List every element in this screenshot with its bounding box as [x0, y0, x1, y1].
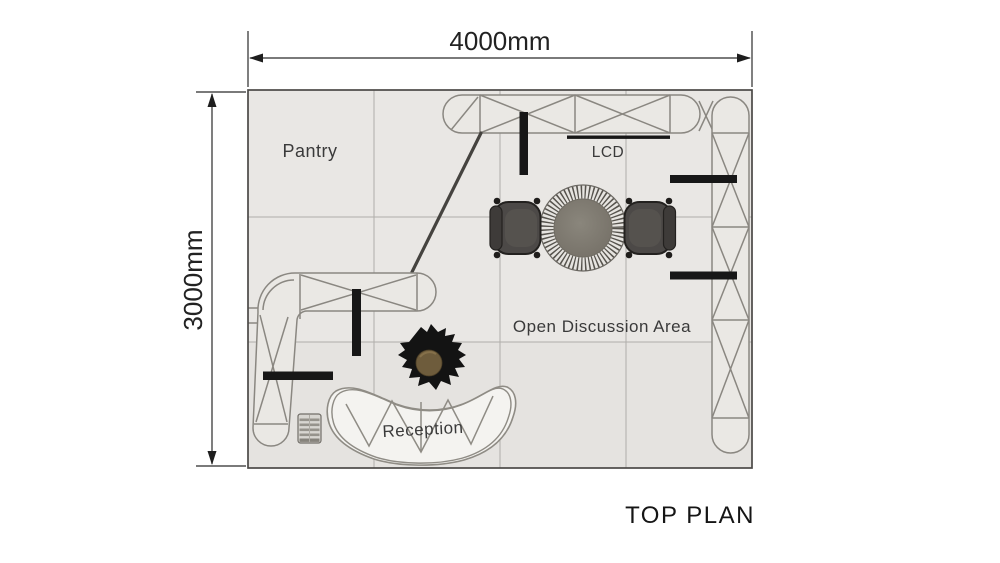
- arrow-up-icon: [208, 93, 217, 107]
- round-table: [540, 185, 626, 271]
- width-dimension-label: 4000mm: [449, 26, 550, 56]
- chair-right: [625, 198, 676, 259]
- height-dimension-label: 3000mm: [178, 229, 208, 330]
- chair-seat: [629, 209, 661, 247]
- plan-title: TOP PLAN: [625, 502, 755, 529]
- table-top: [554, 199, 612, 257]
- chair-left: [490, 198, 541, 259]
- chair-seat: [505, 209, 537, 247]
- waste-bin: [298, 414, 321, 443]
- arrow-right-icon: [737, 54, 751, 63]
- floor-plan-svg: 4000mm 3000mm: [0, 0, 1000, 563]
- dimension-left: 3000mm: [178, 92, 246, 466]
- arrow-left-icon: [249, 54, 263, 63]
- arrow-down-icon: [208, 451, 217, 465]
- floor-plan-page: 4000mm 3000mm: [0, 0, 1000, 563]
- display-bar: [352, 289, 361, 356]
- display-bar: [520, 112, 529, 175]
- open-discussion-label: Open Discussion Area: [513, 317, 691, 336]
- display-bar: [670, 272, 737, 280]
- lcd-screen: [567, 136, 670, 139]
- person-head: [416, 350, 442, 376]
- pantry-label: Pantry: [282, 141, 337, 161]
- dimension-top: 4000mm: [248, 26, 752, 87]
- back-wall-truss: [443, 95, 700, 133]
- lcd-label: LCD: [592, 144, 625, 161]
- display-bar: [263, 372, 333, 381]
- display-bar: [670, 175, 737, 183]
